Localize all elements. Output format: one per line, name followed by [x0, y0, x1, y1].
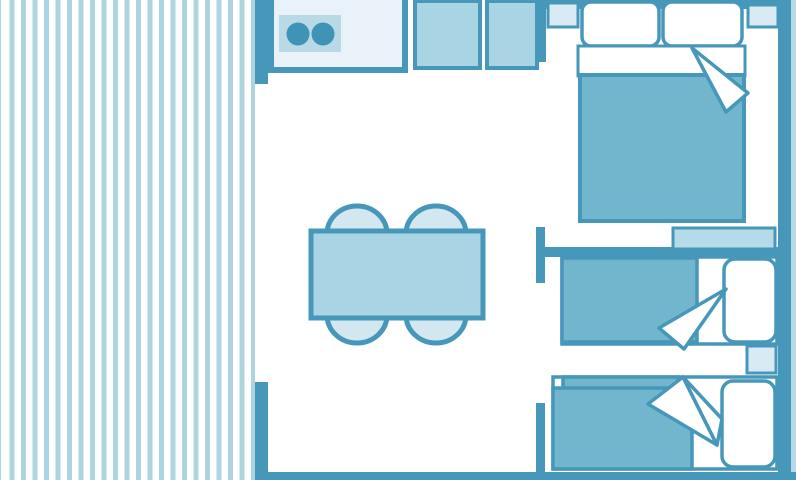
kitchen-cabinet: [415, 1, 480, 68]
wall-left-bottom: [255, 382, 268, 480]
wall-right-outer-edge: [791, 0, 796, 480]
stove-burner-right: [312, 23, 335, 46]
bedroom-single-2: [553, 377, 777, 469]
single-bed-2-pillow: [722, 381, 775, 467]
double-bed-pillow-left: [582, 2, 659, 46]
nightstand-single: [747, 346, 776, 373]
kitchen: [271, 0, 537, 70]
nightstand-master-right: [748, 5, 778, 27]
dining-table: [311, 231, 483, 318]
nightstand-master-left: [548, 3, 578, 27]
wall-stub-hall-bottom: [536, 403, 545, 473]
stove-burner-left: [287, 23, 310, 46]
wall-bottom: [255, 472, 796, 480]
wall-shelf: [673, 228, 775, 249]
wall-left-top: [255, 0, 268, 84]
kitchen-fridge: [487, 1, 537, 68]
double-bed-pillow-right: [663, 2, 742, 46]
wall-stub-hall-middle: [536, 227, 545, 283]
floorplan: [0, 0, 796, 480]
wall-right: [778, 0, 791, 480]
bedroom-master: [548, 2, 778, 221]
single-bed-1-pillow: [724, 259, 776, 342]
dining-set: [311, 206, 483, 343]
floorplan-drawing: [0, 0, 796, 480]
